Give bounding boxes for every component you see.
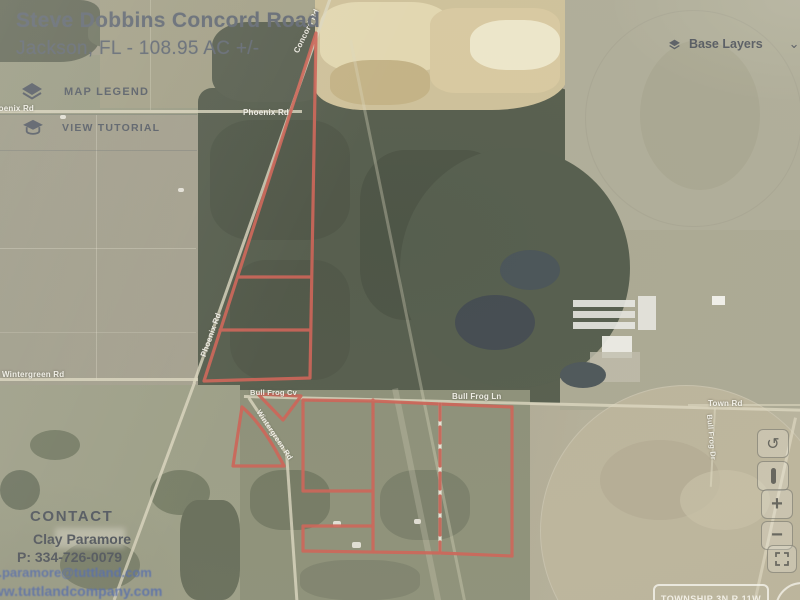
measure-tool-icon	[771, 468, 776, 484]
road-label: Wintergreen Rd	[2, 370, 64, 379]
view-tutorial-button[interactable]: VIEW TUTORIAL	[22, 119, 160, 137]
fullscreen-button[interactable]	[767, 545, 797, 573]
map-legend-button[interactable]: MAP LEGEND	[20, 80, 149, 104]
measure-tool-button[interactable]	[757, 461, 789, 491]
contact-heading: CONTACT	[30, 508, 113, 525]
road-label: Phoenix Rd	[243, 108, 289, 117]
township-text: TOWNSHIP 3N R 11W	[661, 594, 761, 600]
reset-view-button[interactable]: ↺	[757, 429, 789, 458]
page-subtitle: Jackson, FL - 108.95 AC +/-	[16, 38, 259, 60]
zoom-in-button[interactable]: +	[761, 489, 793, 519]
contact-phone: P: 334-726-0079	[17, 549, 122, 565]
road-label: Town Rd	[708, 399, 743, 408]
road-label: Bull Frog Cv	[250, 388, 297, 397]
base-layers-control[interactable]: Base Layers ⌄	[668, 37, 800, 51]
parcel-cluster-top	[303, 400, 512, 407]
parcel-cluster-left-lower	[303, 526, 373, 551]
minus-icon: −	[771, 524, 783, 547]
contact-website-link[interactable]: www.tuttlandcompany.com	[0, 583, 162, 599]
parcel-cluster-bottom	[303, 551, 512, 556]
panel-divider	[0, 150, 197, 151]
layers-icon	[20, 80, 44, 104]
contact-email-link[interactable]: clay.paramore@tuttland.com	[0, 565, 152, 580]
undo-icon: ↺	[766, 434, 779, 454]
panel-divider	[0, 114, 197, 115]
view-tutorial-label: VIEW TUTORIAL	[62, 122, 160, 134]
graduation-cap-icon	[22, 119, 44, 137]
layers-icon-small	[668, 38, 681, 51]
plus-icon: +	[771, 493, 783, 516]
road-label: Bull Frog Ln	[452, 392, 502, 401]
map-legend-label: MAP LEGEND	[64, 86, 149, 98]
fullscreen-icon	[774, 551, 790, 567]
road-label: Phoenix Rd	[0, 104, 34, 113]
parcel-cluster-left-upper	[303, 400, 373, 491]
map-viewport[interactable]: Phoenix Rd Phoenix Rd Concord Rd Phoenix…	[0, 0, 800, 600]
page-title: Steve Dobbins Concord Road	[16, 9, 320, 33]
base-layers-label: Base Layers	[689, 37, 763, 51]
chevron-down-icon: ⌄	[789, 41, 800, 47]
township-label: TOWNSHIP 3N R 11W	[653, 584, 769, 600]
contact-name: Clay Paramore	[33, 531, 131, 547]
